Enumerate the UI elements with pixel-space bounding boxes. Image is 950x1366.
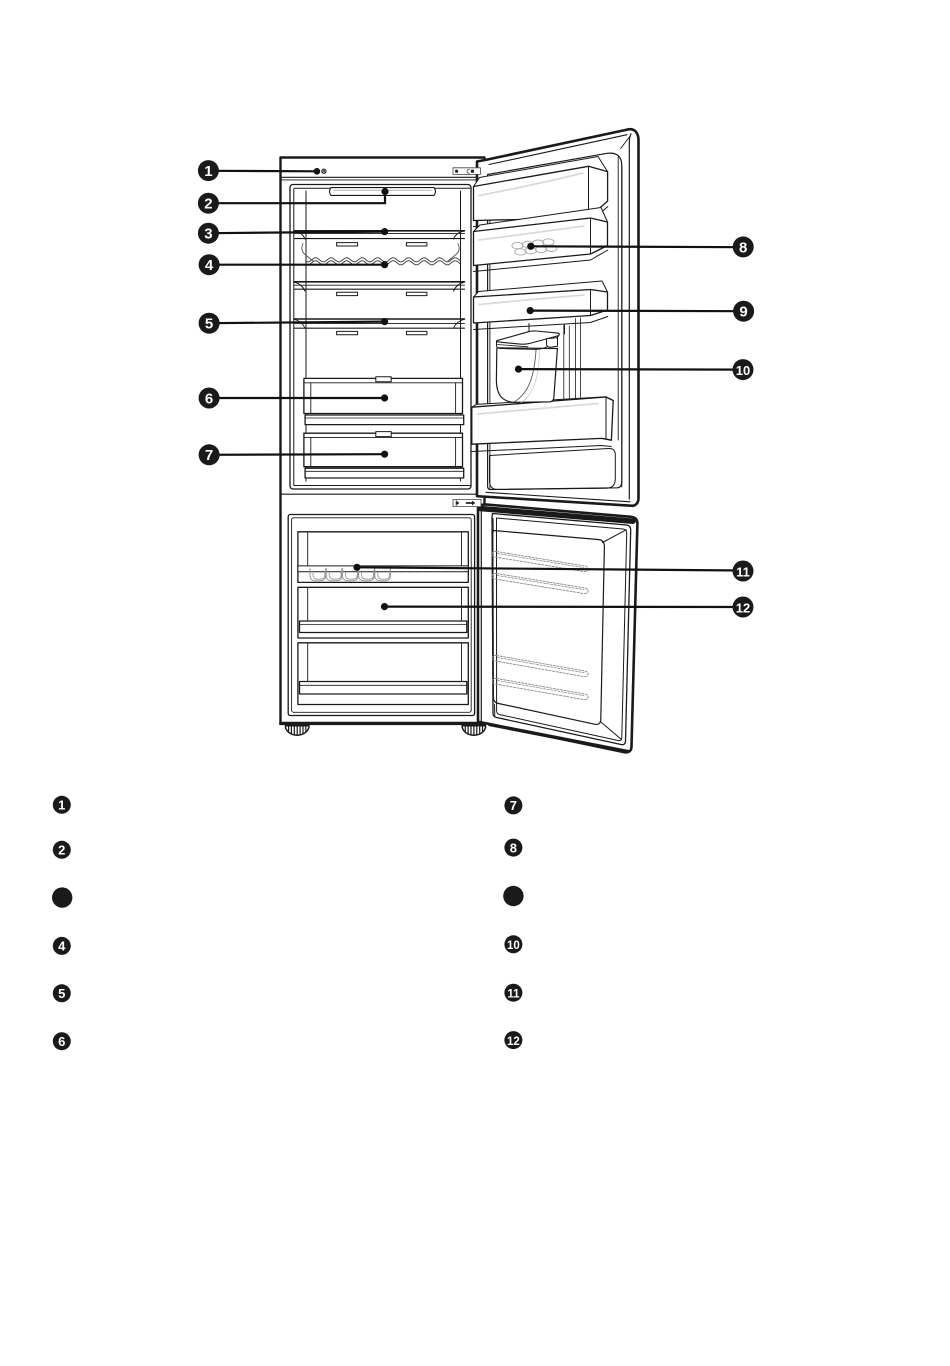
svg-text:12: 12 — [507, 1036, 520, 1048]
svg-text:7: 7 — [510, 798, 517, 813]
svg-text:8: 8 — [510, 840, 517, 855]
svg-text:5: 5 — [205, 316, 213, 333]
svg-text:7: 7 — [205, 447, 213, 464]
svg-text:10: 10 — [736, 363, 750, 378]
svg-text:2: 2 — [58, 843, 65, 858]
svg-text:11: 11 — [507, 988, 520, 1000]
svg-text:1: 1 — [204, 163, 212, 180]
svg-text:6: 6 — [58, 1034, 65, 1049]
svg-text:9: 9 — [739, 304, 747, 321]
svg-text:3: 3 — [204, 226, 212, 243]
svg-text:6: 6 — [205, 390, 213, 407]
svg-text:4: 4 — [205, 257, 214, 274]
svg-text:4: 4 — [58, 939, 66, 954]
svg-text:12: 12 — [736, 600, 750, 615]
svg-text:11: 11 — [736, 564, 750, 579]
svg-text:8: 8 — [739, 239, 747, 256]
svg-text:2: 2 — [204, 196, 212, 213]
svg-text:1: 1 — [58, 798, 65, 813]
svg-text:5: 5 — [58, 986, 65, 1001]
svg-text:10: 10 — [507, 940, 520, 952]
